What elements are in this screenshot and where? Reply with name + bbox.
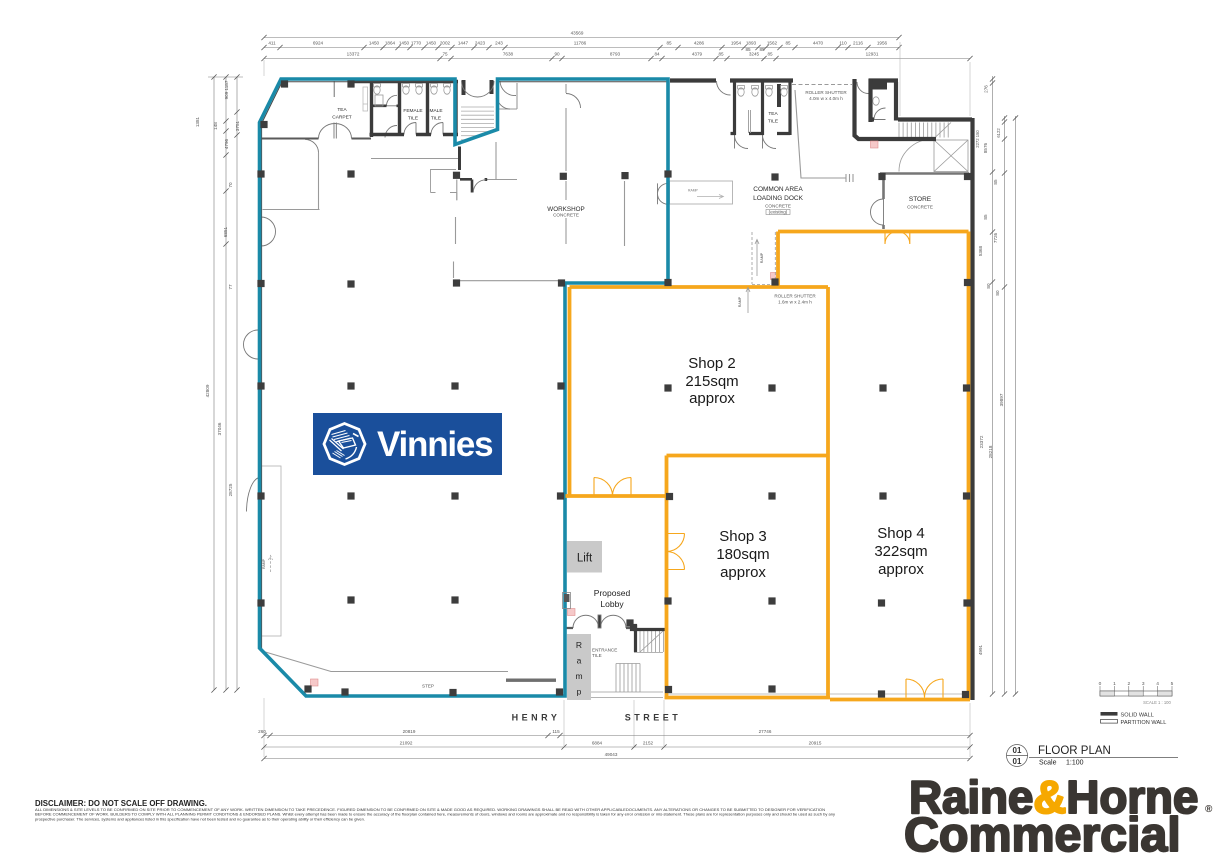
- svg-text:37046: 37046: [217, 422, 222, 435]
- svg-text:Scale: Scale: [1039, 760, 1057, 767]
- svg-text:4470: 4470: [813, 41, 824, 46]
- svg-text:TILE: TILE: [592, 653, 602, 658]
- svg-text:20915: 20915: [809, 741, 822, 746]
- svg-text:1864: 1864: [385, 41, 396, 46]
- svg-text:Vinnies: Vinnies: [377, 425, 493, 464]
- svg-text:1: 1: [1113, 681, 1116, 687]
- svg-text:85: 85: [718, 52, 724, 57]
- svg-text:CONCRETE: CONCRETE: [553, 213, 579, 218]
- svg-text:85: 85: [993, 179, 998, 185]
- svg-text:(existing): (existing): [769, 210, 788, 215]
- svg-text:RAMP: RAMP: [688, 189, 699, 193]
- svg-text:7726: 7726: [993, 232, 998, 243]
- svg-text:8793: 8793: [610, 52, 621, 57]
- svg-text:75: 75: [442, 52, 448, 57]
- svg-text:BEFORE COMMENCEMENT OF WORK. B: BEFORE COMMENCEMENT OF WORK. BUILDERS TO…: [35, 813, 835, 817]
- svg-text:28725: 28725: [228, 483, 233, 496]
- svg-text:2272 150: 2272 150: [975, 130, 980, 148]
- svg-text:276: 276: [984, 85, 989, 93]
- svg-text:3: 3: [1142, 681, 1145, 687]
- svg-text:prospective purchaser. The ser: prospective purchaser. The services, sys…: [35, 817, 365, 821]
- svg-text:3751: 3751: [235, 120, 240, 131]
- svg-text:TILE: TILE: [768, 119, 778, 125]
- svg-text:FEMALE: FEMALE: [403, 108, 422, 114]
- svg-text:70: 70: [228, 182, 233, 188]
- svg-text:148: 148: [213, 122, 218, 130]
- svg-text:HENRY: HENRY: [512, 713, 561, 723]
- svg-text:5: 5: [1171, 681, 1174, 687]
- svg-text:TEA: TEA: [337, 107, 347, 113]
- svg-text:ENTRANCE: ENTRANCE: [592, 648, 617, 653]
- svg-text:MALE: MALE: [429, 108, 442, 114]
- svg-text:85: 85: [767, 52, 773, 57]
- svg-text:Proposed: Proposed: [594, 588, 631, 598]
- svg-text:115: 115: [552, 729, 560, 734]
- svg-text:8576: 8576: [983, 142, 988, 153]
- svg-text:80: 80: [995, 290, 1000, 296]
- svg-text:RAMP: RAMP: [760, 252, 764, 263]
- svg-text:STREET: STREET: [625, 713, 682, 723]
- svg-text:39897: 39897: [999, 393, 1004, 406]
- svg-text:85: 85: [666, 41, 672, 46]
- svg-text:42809: 42809: [205, 384, 210, 397]
- svg-text:01: 01: [1013, 757, 1022, 766]
- svg-text:CONCRETE: CONCRETE: [907, 205, 933, 210]
- svg-text:LOADING DOCK: LOADING DOCK: [753, 195, 804, 202]
- svg-text:180sqm: 180sqm: [716, 546, 769, 563]
- svg-text:6924: 6924: [313, 41, 324, 46]
- svg-text:80: 80: [986, 283, 991, 289]
- svg-text:4: 4: [1156, 681, 1159, 687]
- svg-text:12931: 12931: [866, 52, 879, 57]
- svg-text:2116: 2116: [853, 41, 863, 46]
- svg-text:TEA: TEA: [768, 111, 778, 117]
- svg-text:Commercial: Commercial: [904, 808, 1181, 862]
- svg-text:m: m: [575, 671, 582, 681]
- svg-text:STORE: STORE: [909, 196, 932, 203]
- svg-text:approx: approx: [878, 561, 924, 578]
- svg-text:CONCRETE: CONCRETE: [765, 204, 791, 209]
- svg-text:SCALE 1 : 100: SCALE 1 : 100: [1143, 700, 1171, 705]
- svg-text:SOLID WALL: SOLID WALL: [1121, 713, 1154, 719]
- svg-text:FLOOR PLAN: FLOOR PLAN: [1038, 745, 1111, 757]
- svg-text:85: 85: [983, 214, 988, 220]
- svg-text:1954: 1954: [731, 41, 742, 46]
- svg-text:approx: approx: [689, 390, 735, 407]
- svg-text:43569: 43569: [571, 31, 584, 36]
- svg-text:TILE: TILE: [408, 116, 418, 122]
- svg-text:13372: 13372: [347, 52, 360, 57]
- svg-text:R: R: [576, 640, 582, 650]
- svg-text:a: a: [577, 656, 582, 666]
- svg-text:909 1187: 909 1187: [224, 80, 229, 99]
- svg-text:Shop 4: Shop 4: [877, 525, 925, 542]
- svg-text:5368: 5368: [978, 245, 983, 256]
- svg-text:ROLLER SHUTTER: ROLLER SHUTTER: [805, 90, 847, 95]
- svg-text:49043: 49043: [605, 752, 618, 757]
- svg-text:6122: 6122: [996, 128, 1001, 138]
- svg-text:1956: 1956: [877, 41, 888, 46]
- svg-text:2: 2: [1127, 681, 1130, 687]
- svg-text:DISCLAIMER: DO NOT SCALE OFF D: DISCLAIMER: DO NOT SCALE OFF DRAWING.: [35, 799, 207, 808]
- svg-text:6851: 6851: [223, 226, 228, 237]
- svg-text:28218: 28218: [988, 445, 993, 458]
- svg-text:84: 84: [654, 52, 660, 57]
- svg-text:1450: 1450: [369, 41, 380, 46]
- svg-text:411: 411: [268, 41, 276, 46]
- svg-text:3245: 3245: [749, 52, 760, 57]
- svg-text:23372: 23372: [979, 435, 984, 448]
- svg-text:4379: 4379: [692, 52, 703, 57]
- svg-text:0: 0: [1099, 681, 1102, 687]
- svg-text:Lobby: Lobby: [600, 599, 624, 609]
- svg-text:85: 85: [785, 41, 791, 46]
- svg-text:ALL DIMENSIONS & SITE LEVELS T: ALL DIMENSIONS & SITE LEVELS TO BE CONFI…: [35, 808, 826, 812]
- svg-text:01: 01: [1013, 746, 1022, 755]
- svg-text:PARTITION WALL: PARTITION WALL: [1121, 720, 1167, 726]
- svg-text:260: 260: [258, 729, 266, 734]
- svg-text:4.0m w x 4.0m h: 4.0m w x 4.0m h: [809, 96, 843, 101]
- svg-text:11786: 11786: [574, 41, 587, 46]
- svg-text:77: 77: [228, 284, 233, 290]
- svg-text:90: 90: [554, 52, 560, 57]
- svg-text:2002: 2002: [440, 41, 451, 46]
- svg-text:Lift: Lift: [577, 553, 593, 565]
- svg-text:Shop 3: Shop 3: [719, 528, 767, 545]
- svg-text:85: 85: [759, 47, 765, 52]
- svg-text:p: p: [577, 687, 582, 697]
- svg-text:4991: 4991: [978, 644, 983, 655]
- svg-text:RAMP: RAMP: [262, 558, 266, 569]
- svg-text:TILE: TILE: [431, 116, 441, 122]
- svg-text:27746: 27746: [759, 729, 772, 734]
- svg-text:COMMON AREA: COMMON AREA: [753, 186, 803, 193]
- svg-text:21092: 21092: [400, 741, 413, 746]
- svg-text:STEP: STEP: [422, 684, 434, 689]
- svg-text:4286: 4286: [694, 41, 705, 46]
- svg-text:approx: approx: [720, 564, 766, 581]
- svg-text:Shop 2: Shop 2: [688, 355, 736, 372]
- svg-text:RAMP: RAMP: [738, 296, 742, 307]
- svg-text:215sqm: 215sqm: [685, 373, 738, 390]
- svg-text:4796: 4796: [224, 138, 229, 149]
- svg-text:ROLLER SHUTTER: ROLLER SHUTTER: [774, 294, 816, 299]
- svg-text:CARPET: CARPET: [332, 115, 352, 121]
- svg-text:1893: 1893: [746, 41, 757, 46]
- svg-text:1447: 1447: [458, 41, 469, 46]
- svg-text:322sqm: 322sqm: [874, 543, 927, 560]
- svg-text:20819: 20819: [403, 729, 416, 734]
- svg-text:6884: 6884: [592, 741, 603, 746]
- svg-text:1:100: 1:100: [1066, 760, 1084, 767]
- svg-text:1381: 1381: [195, 116, 200, 127]
- svg-text:2152: 2152: [643, 741, 654, 746]
- svg-text:1.6m w x 2.4m h: 1.6m w x 2.4m h: [778, 300, 812, 305]
- svg-text:®: ®: [1205, 804, 1213, 815]
- svg-text:243: 243: [495, 41, 503, 46]
- svg-text:7638: 7638: [503, 52, 514, 57]
- svg-text:1450: 1450: [426, 41, 437, 46]
